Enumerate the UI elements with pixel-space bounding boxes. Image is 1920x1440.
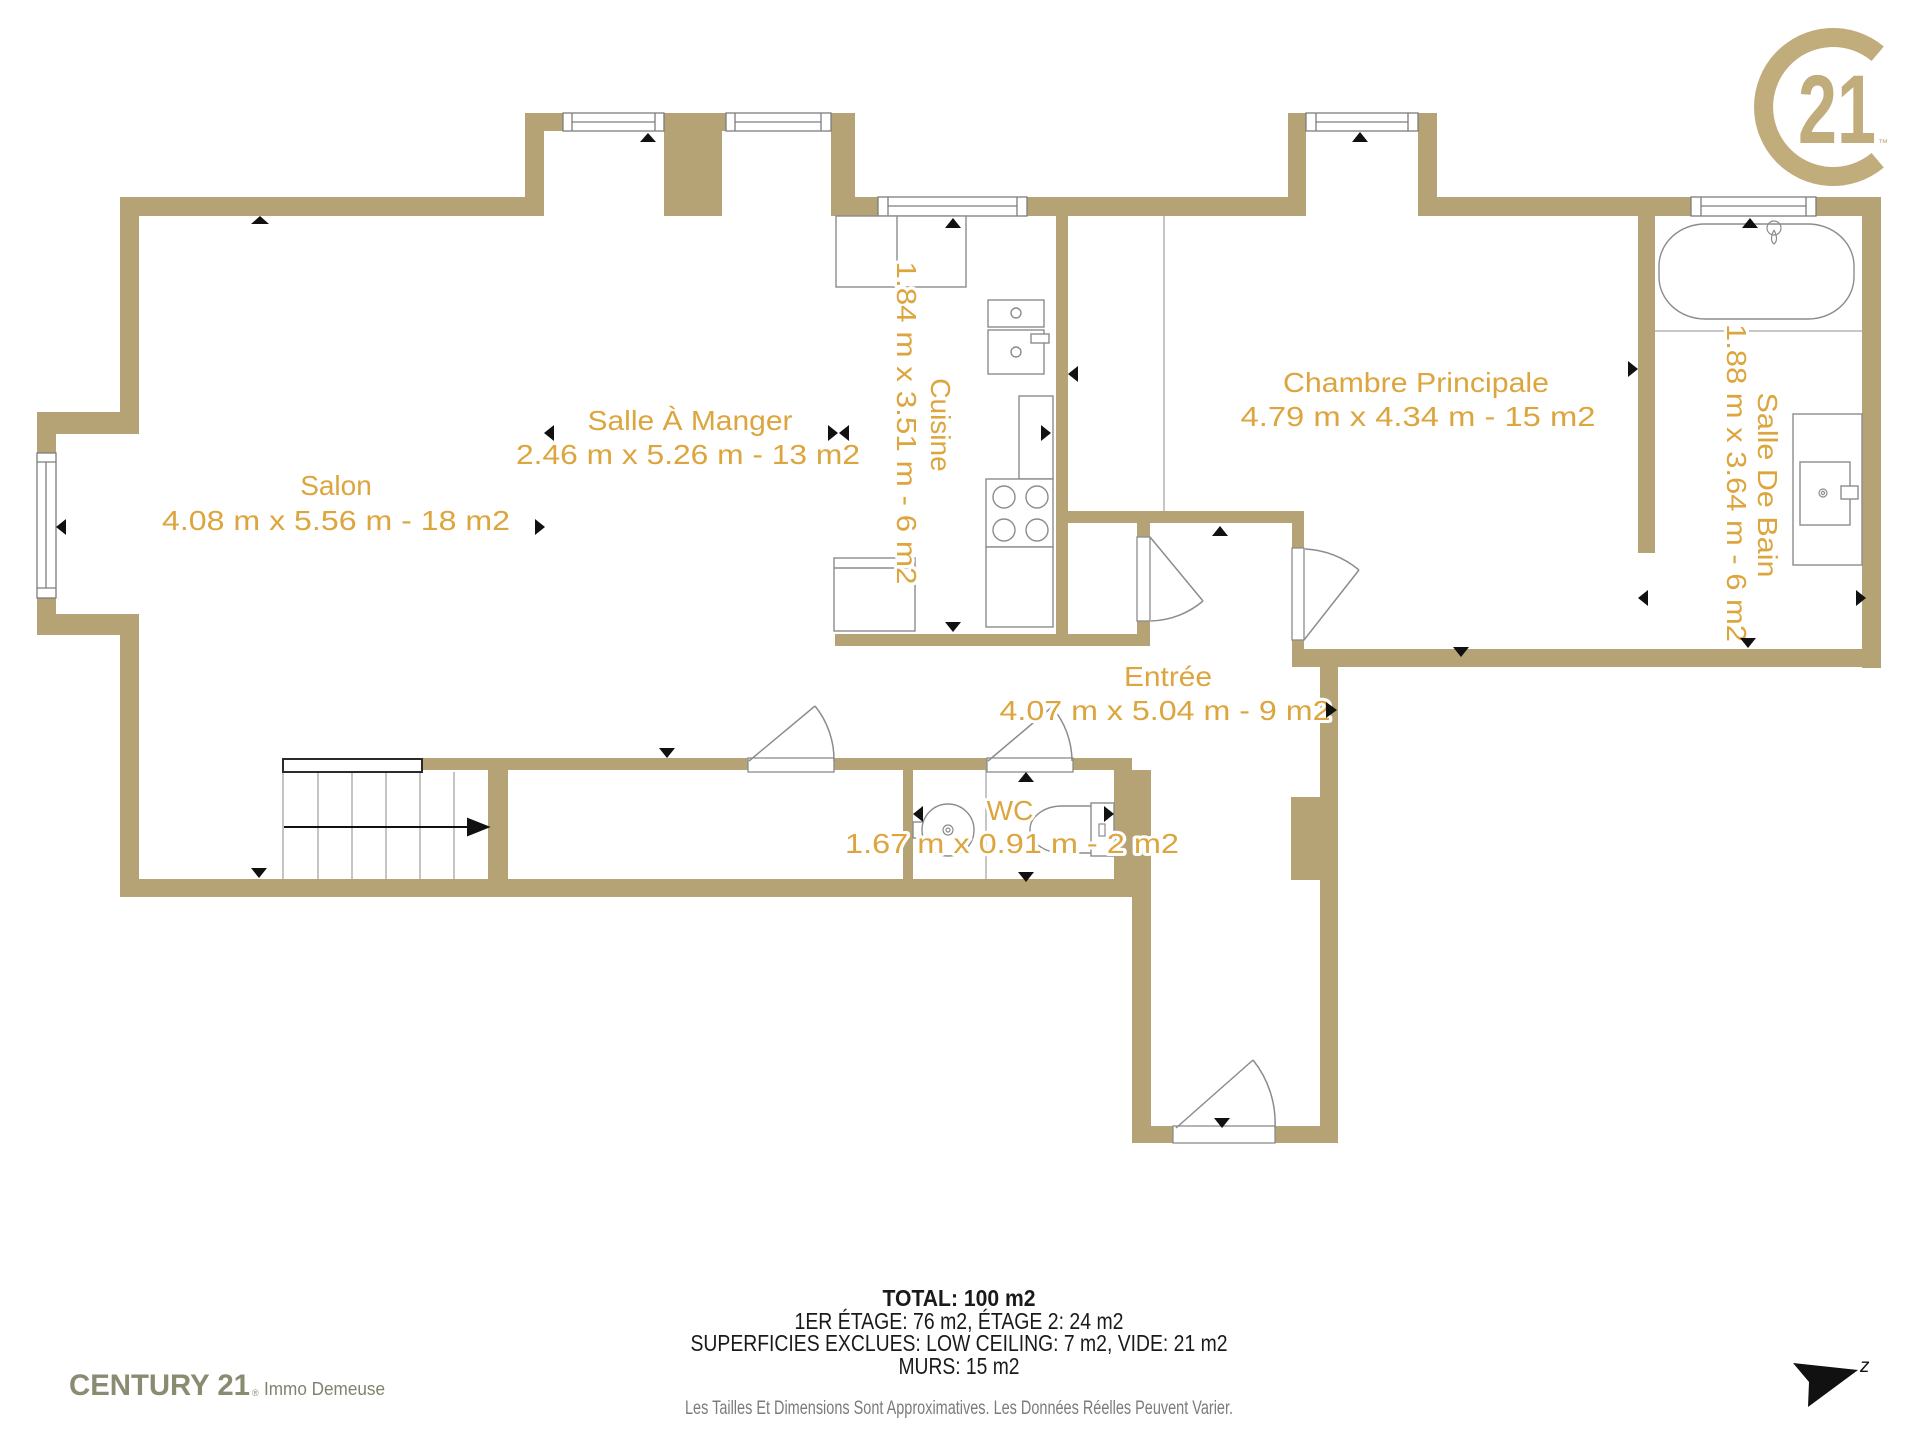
svg-text:4.07 m x 5.04 m - 9 m2: 4.07 m x 5.04 m - 9 m2 bbox=[1000, 695, 1331, 726]
svg-text:®: ® bbox=[252, 1388, 259, 1398]
svg-text:4.08 m x 5.56 m - 18 m2: 4.08 m x 5.56 m - 18 m2 bbox=[162, 505, 510, 536]
svg-text:1.88 m x 3.64 m - 6 m2: 1.88 m x 3.64 m - 6 m2 bbox=[1721, 324, 1752, 642]
svg-text:WC: WC bbox=[987, 795, 1034, 826]
svg-text:1.67 m x 0.91 m - 2 m2: 1.67 m x 0.91 m - 2 m2 bbox=[845, 828, 1179, 859]
svg-text:4.79 m x 4.34 m - 15 m2: 4.79 m x 4.34 m - 15 m2 bbox=[1241, 401, 1596, 432]
svg-text:MURS: 15 m2: MURS: 15 m2 bbox=[899, 1353, 1020, 1379]
svg-text:z: z bbox=[1859, 1356, 1870, 1377]
svg-text:Cuisine: Cuisine bbox=[925, 378, 956, 471]
svg-text:CENTURY 21: CENTURY 21 bbox=[69, 1369, 250, 1402]
svg-text:Salle À Manger: Salle À Manger bbox=[588, 405, 793, 436]
svg-text:2.46 m x 5.26 m - 13 m2: 2.46 m x 5.26 m - 13 m2 bbox=[516, 439, 860, 470]
svg-text:Immo Demeuse: Immo Demeuse bbox=[264, 1379, 385, 1399]
svg-text:Chambre Principale: Chambre Principale bbox=[1283, 367, 1549, 398]
svg-text:1.84 m x 3.51 m - 6 m2: 1.84 m x 3.51 m - 6 m2 bbox=[891, 262, 922, 585]
svg-text:Salon: Salon bbox=[300, 470, 372, 501]
svg-text:Entrée: Entrée bbox=[1124, 661, 1212, 692]
svg-text:Salle De Bain: Salle De Bain bbox=[1752, 393, 1783, 578]
svg-text:21: 21 bbox=[1798, 55, 1876, 164]
svg-text:Les Tailles Et Dimensions Sont: Les Tailles Et Dimensions Sont Approxima… bbox=[685, 1398, 1233, 1419]
svg-text:™: ™ bbox=[1878, 138, 1888, 149]
